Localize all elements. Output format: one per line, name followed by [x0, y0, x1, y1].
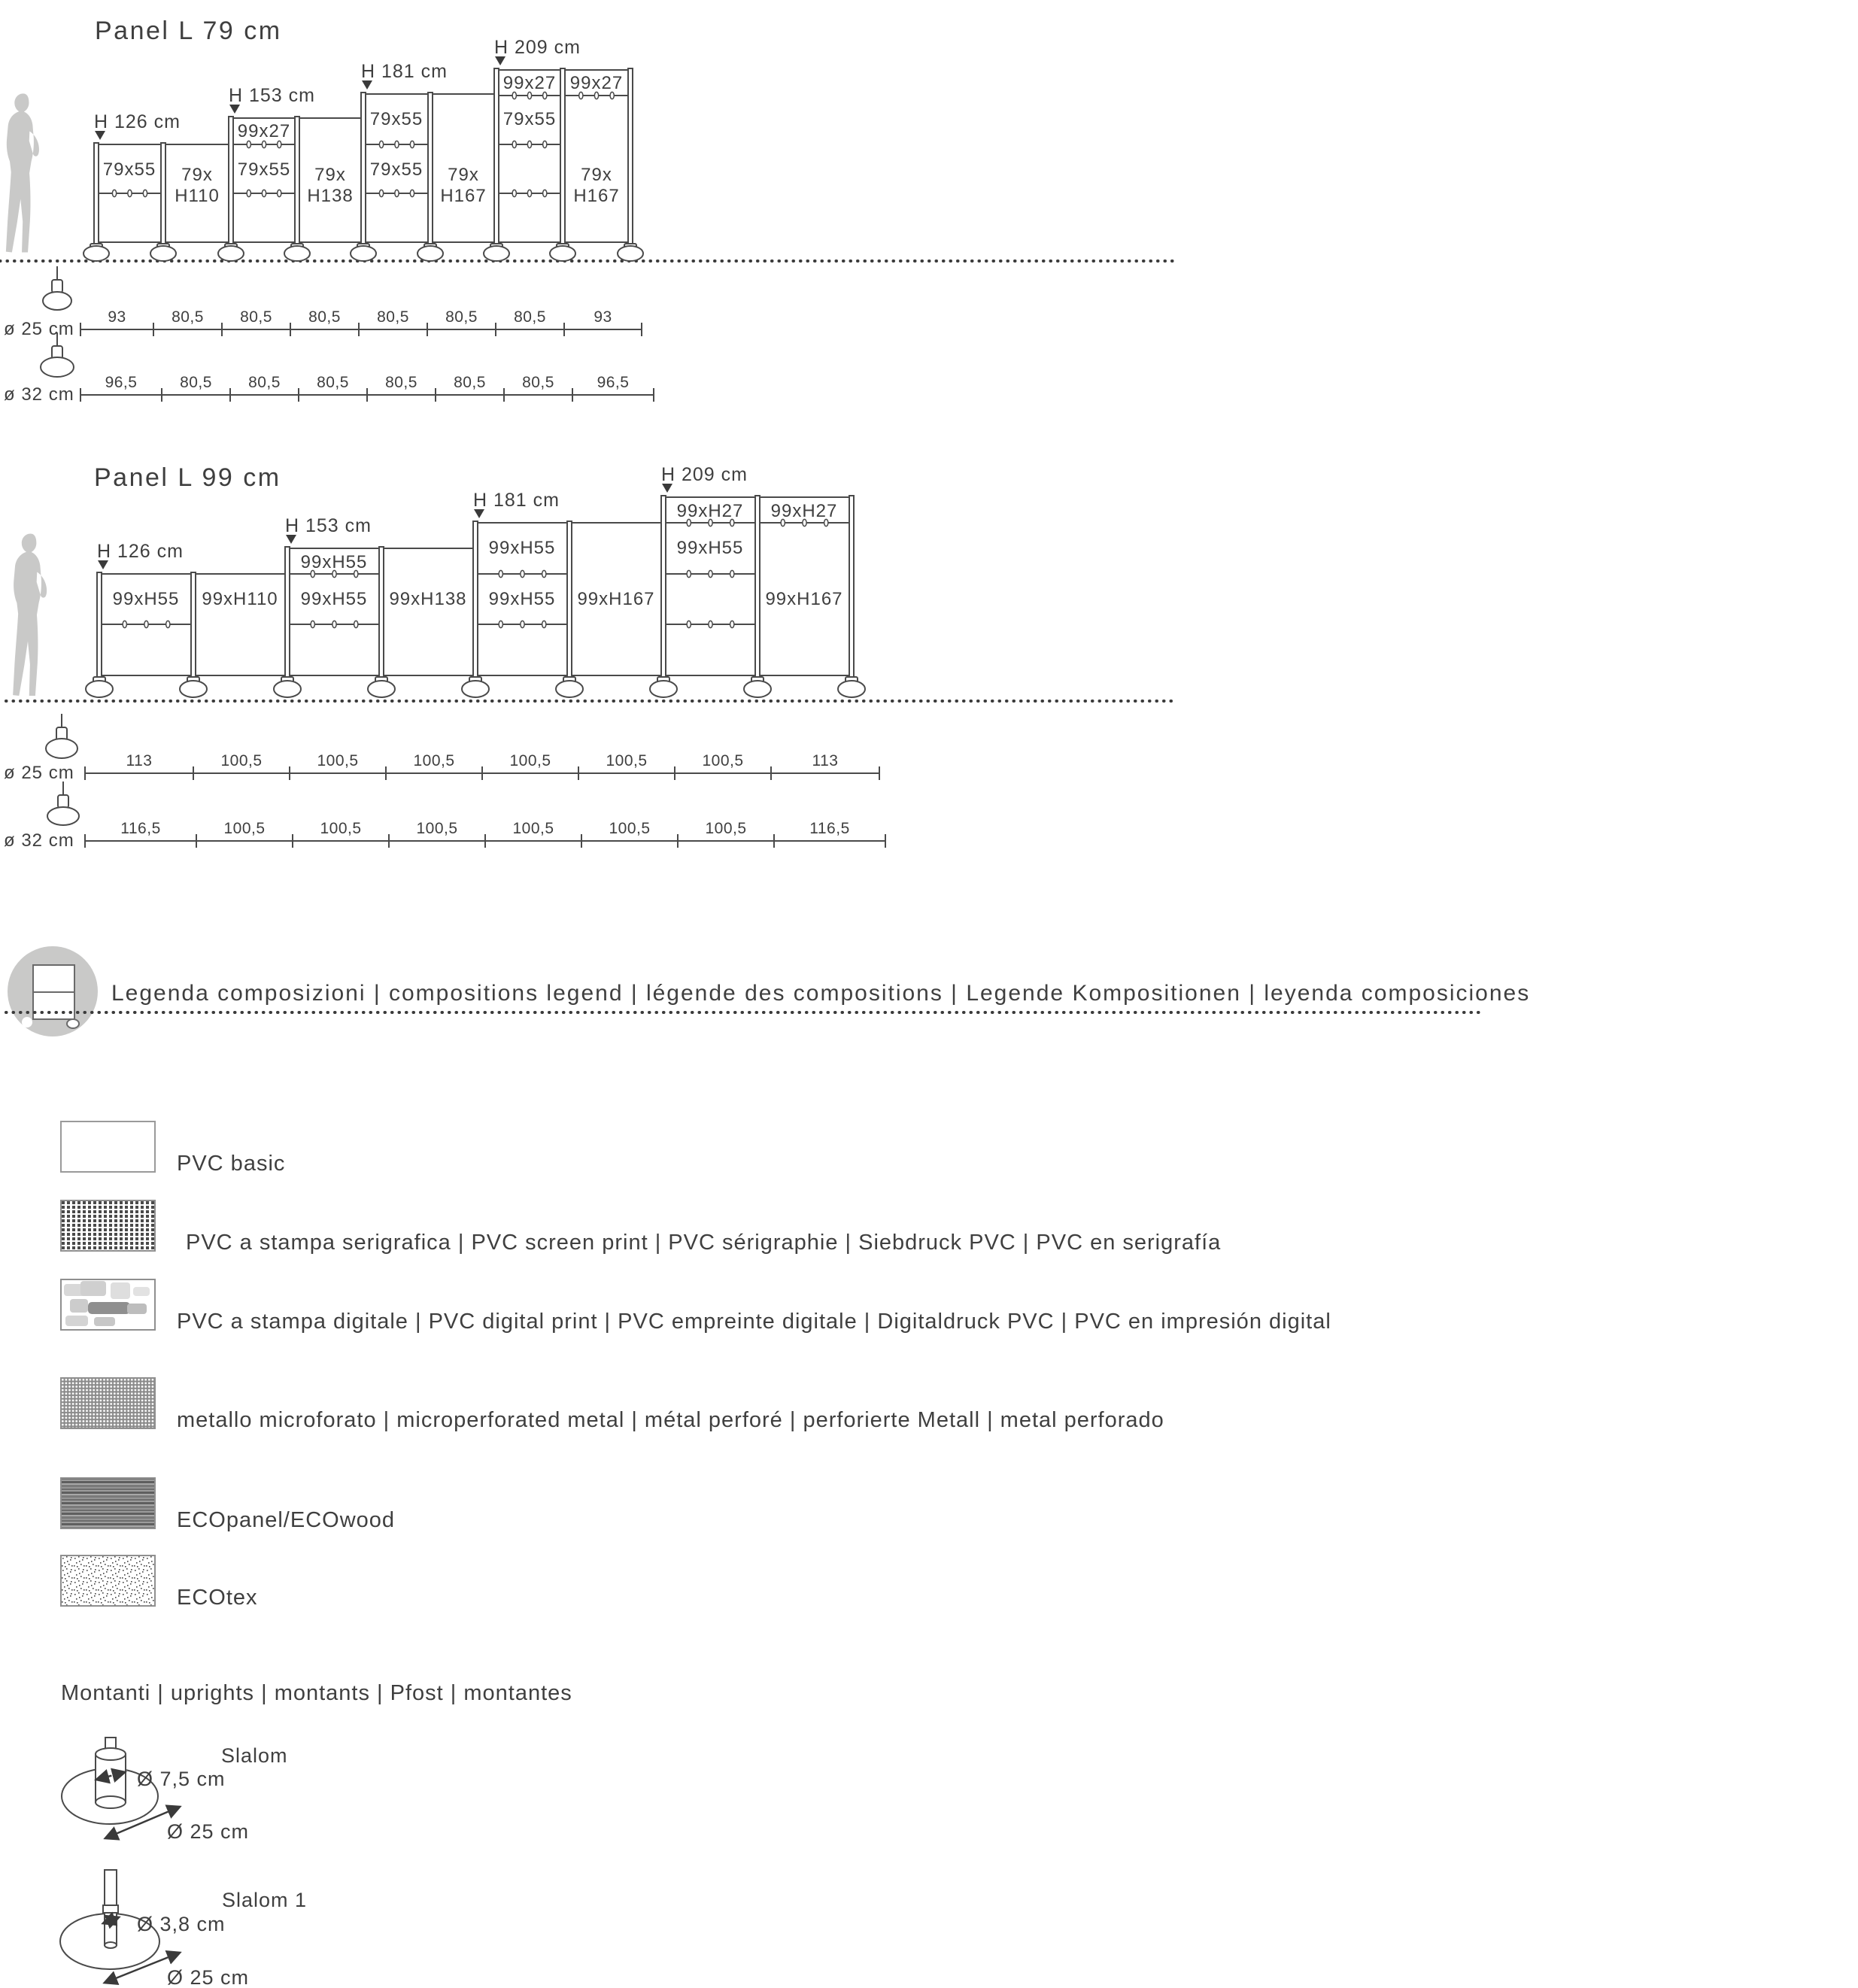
- post-base: [218, 246, 244, 261]
- post-base: [417, 246, 443, 261]
- panel-size-label: 79x: [448, 165, 479, 185]
- post-base: [650, 681, 677, 697]
- upright-slalom: Slalom Ø 7,5 cm Ø 25 cm: [62, 1738, 288, 1843]
- divider-connector-icon: [687, 570, 691, 577]
- panel-size-label: 99xH55: [677, 538, 744, 558]
- post-base: [618, 246, 643, 261]
- dimension-value: 80,5: [522, 374, 554, 391]
- legend-item: metallo microforato | microperforated me…: [61, 1378, 1164, 1432]
- divider-connector-icon: [410, 190, 414, 196]
- divider-connector-icon: [112, 190, 116, 196]
- dimension-value: 80,5: [454, 374, 486, 391]
- panel-size-label: 79x55: [370, 159, 423, 180]
- dimension-value: 100,5: [416, 820, 457, 837]
- panel-size-label: 99xH27: [677, 501, 744, 521]
- legend-item: ECOpanel/ECOwood: [61, 1478, 395, 1532]
- dimension-value: 93: [594, 308, 612, 326]
- swatch-ecopanel: [61, 1478, 155, 1528]
- divider-connector-icon: [527, 141, 531, 147]
- divider-connector-icon: [128, 190, 132, 196]
- dimension-value: 80,5: [248, 374, 281, 391]
- panel-size-label: 99xH55: [489, 589, 556, 609]
- divider-connector-icon: [499, 621, 502, 627]
- panel-bay: [381, 548, 475, 675]
- divider-connector-icon: [395, 190, 399, 196]
- dimension-value: 100,5: [705, 820, 746, 837]
- legend-item-label: PVC a stampa serigrafica | PVC screen pr…: [186, 1231, 1221, 1255]
- height-arrow-icon: [662, 484, 672, 493]
- divider-connector-icon: [687, 621, 691, 627]
- dimension-value: 96,5: [597, 374, 630, 391]
- height-arrow-icon: [495, 56, 505, 65]
- dimension-value: 113: [126, 752, 153, 769]
- dimension-value: 80,5: [240, 308, 272, 326]
- divider-connector-icon: [354, 621, 358, 627]
- upright-post: [97, 572, 102, 684]
- divider-connector-icon: [730, 621, 734, 627]
- height-label: H 181 cm: [473, 490, 560, 511]
- catalog-drawing: Panel L 79 cmH 126 cmH 153 cmH 181 cmH 2…: [0, 0, 1858, 1988]
- height-arrow-icon: [474, 509, 484, 518]
- dimension-value: 100,5: [512, 820, 554, 837]
- panel-size-label: 79x: [314, 165, 346, 185]
- dimension-value: 116,5: [120, 820, 161, 837]
- swatch-microperforated: [61, 1378, 155, 1428]
- divider-connector-icon: [395, 141, 399, 147]
- uprights-header: Montanti | uprights | montants | Pfost |…: [61, 1681, 572, 1705]
- panel-size-label: 79x55: [103, 159, 156, 180]
- panel-size-label: 79x: [581, 165, 612, 185]
- legend-item: PVC a stampa serigrafica | PVC screen pr…: [61, 1200, 1221, 1255]
- dimension-value: 100,5: [702, 752, 743, 769]
- dimension-value: 96,5: [105, 374, 138, 391]
- upright-name: Slalom: [221, 1744, 288, 1767]
- divider-connector-icon: [278, 141, 281, 147]
- height-label: H 209 cm: [661, 464, 748, 485]
- legend-item-label: PVC a stampa digitale | PVC digital prin…: [177, 1310, 1331, 1334]
- divider-connector-icon: [410, 141, 414, 147]
- upright-base-icon: [47, 807, 79, 825]
- upright-post: [560, 68, 565, 251]
- panel-size-label: 99xH55: [301, 589, 368, 609]
- post-base: [838, 681, 865, 697]
- upright-base-icon: [43, 292, 71, 310]
- base-diameter-label: Ø 25 cm: [167, 1820, 249, 1843]
- panel-size-label: 79x55: [370, 109, 423, 129]
- catalog-page: Panel L 79 cmH 126 cmH 153 cmH 181 cmH 2…: [0, 0, 1858, 1988]
- post-base: [86, 681, 113, 697]
- upright-post: [628, 68, 633, 251]
- base-diameter-label: ø 25 cm: [4, 763, 74, 783]
- dimension-value: 80,5: [308, 308, 341, 326]
- legend-item-label: ECOpanel/ECOwood: [177, 1508, 395, 1532]
- height-arrow-icon: [229, 105, 240, 114]
- dimension-value: 100,5: [413, 752, 454, 769]
- divider-connector-icon: [512, 190, 516, 196]
- dimension-value: 80,5: [445, 308, 478, 326]
- panel-size-label: H167: [573, 186, 619, 206]
- post-base: [351, 246, 376, 261]
- legend-section: Legenda composizioni | compositions lege…: [6, 946, 1530, 1610]
- dimension-value: 100,5: [606, 752, 647, 769]
- divider-connector-icon: [379, 190, 383, 196]
- divider-connector-icon: [543, 141, 547, 147]
- upright-post: [295, 117, 299, 251]
- upright-post: [494, 68, 499, 251]
- divider-connector-icon: [123, 621, 126, 627]
- height-label: H 153 cm: [229, 85, 315, 106]
- upright-post: [473, 521, 478, 684]
- panel-size-label: H167: [440, 186, 486, 206]
- divider-connector-icon: [166, 621, 170, 627]
- panel-size-label: 99xH167: [765, 589, 842, 609]
- panel-size-label: 99x27: [503, 73, 556, 93]
- divider-connector-icon: [543, 190, 547, 196]
- legend-badge-icon: [8, 946, 98, 1036]
- panel-size-label: H138: [307, 186, 353, 206]
- upright-post: [755, 496, 760, 684]
- height-label: H 126 cm: [97, 541, 184, 562]
- divider-connector-icon: [521, 570, 524, 577]
- dimension-value: 80,5: [377, 308, 409, 326]
- post-base: [274, 681, 301, 697]
- height-label: H 126 cm: [94, 111, 181, 132]
- upright-post: [285, 547, 290, 684]
- divider-connector-icon: [311, 621, 314, 627]
- dimension-value: 93: [108, 308, 126, 326]
- height-label: H 209 cm: [494, 37, 581, 58]
- post-base: [484, 246, 509, 261]
- panel-size-label: 99x27: [570, 73, 623, 93]
- dimension-value: 80,5: [180, 374, 212, 391]
- dimension-value: 100,5: [609, 820, 650, 837]
- swatch-screen-print: [61, 1200, 155, 1251]
- height-arrow-icon: [286, 535, 296, 544]
- height-label: H 153 cm: [285, 515, 372, 536]
- divider-connector-icon: [262, 141, 266, 147]
- panel-size-label: 79x: [181, 165, 213, 185]
- divider-connector-icon: [542, 570, 546, 577]
- panel-size-label: 99xH167: [577, 589, 654, 609]
- upright-post: [849, 496, 854, 684]
- post-base: [83, 246, 109, 261]
- collar: [103, 1905, 118, 1913]
- dimension-value: 100,5: [223, 820, 265, 837]
- panel-size-label: 99xH138: [389, 589, 466, 609]
- height-label: H 181 cm: [361, 61, 448, 82]
- base-diameter-label: Ø 25 cm: [167, 1966, 249, 1988]
- swatch-ecotex: [61, 1555, 155, 1606]
- person-silhouette: [13, 533, 47, 695]
- divider-connector-icon: [499, 570, 502, 577]
- uprights-section: Montanti | uprights | montants | Pfost |…: [60, 1681, 572, 1988]
- panel-size-label: 99x27: [238, 121, 290, 141]
- panel-size-label: 99xH55: [489, 538, 556, 558]
- diagram-title: Panel L 79 cm: [95, 17, 282, 45]
- post-base: [744, 681, 771, 697]
- dimension-value: 100,5: [317, 752, 358, 769]
- base-diameter-label: ø 32 cm: [4, 384, 74, 405]
- person-silhouette: [6, 93, 39, 252]
- divider-connector-icon: [521, 621, 524, 627]
- post-base: [462, 681, 489, 697]
- base-diameter-label: ø 25 cm: [4, 319, 74, 339]
- panel-size-label: H110: [175, 186, 220, 206]
- legend-item: PVC a stampa digitale | PVC digital prin…: [61, 1279, 1331, 1334]
- upright-base-icon: [52, 280, 62, 293]
- upright-post: [361, 93, 366, 251]
- divider-connector-icon: [379, 141, 383, 147]
- upright-base-icon: [46, 739, 77, 758]
- divider-connector-icon: [527, 190, 531, 196]
- dimension-value: 80,5: [385, 374, 417, 391]
- dimension-value: 80,5: [317, 374, 349, 391]
- dimension-value: 80,5: [172, 308, 204, 326]
- height-arrow-icon: [95, 131, 105, 140]
- swatch-pvc-basic: [61, 1121, 155, 1172]
- upright-name: Slalom 1: [222, 1889, 307, 1911]
- divider-connector-icon: [709, 570, 712, 577]
- legend-item-label: ECOtex: [177, 1586, 258, 1610]
- divider-connector-icon: [262, 190, 266, 196]
- post-base: [550, 246, 575, 261]
- upright-post: [379, 547, 384, 684]
- divider-connector-icon: [247, 141, 250, 147]
- upright-post: [661, 496, 666, 684]
- post-base: [556, 681, 583, 697]
- legend-item: PVC basic: [61, 1121, 285, 1176]
- post-base: [180, 681, 207, 697]
- upright-post: [161, 143, 165, 251]
- divider-connector-icon: [730, 570, 734, 577]
- divider-connector-icon: [542, 621, 546, 627]
- divider-connector-icon: [247, 190, 250, 196]
- height-arrow-icon: [362, 80, 372, 90]
- dimension-value: 100,5: [220, 752, 262, 769]
- upright-post: [567, 521, 572, 684]
- panel-size-label: 79x55: [503, 109, 556, 129]
- post-base: [284, 246, 310, 261]
- upright-post: [191, 572, 196, 684]
- upright-base-icon: [58, 795, 68, 808]
- panel-size-label: 99xH110: [202, 589, 278, 609]
- upright-base-icon: [41, 357, 74, 377]
- post-base: [368, 681, 395, 697]
- panel-size-label: 99xH55: [113, 589, 180, 609]
- divider-connector-icon: [144, 621, 148, 627]
- upright-post: [428, 93, 433, 251]
- divider-connector-icon: [332, 621, 336, 627]
- dimension-value: 100,5: [509, 752, 551, 769]
- divider-connector-icon: [143, 190, 147, 196]
- divider-connector-icon: [278, 190, 281, 196]
- diagram-panel-l99: Panel L 99 cmH 126 cmH 153 cmH 181 cmH 2…: [4, 463, 1177, 851]
- dimension-value: 116,5: [809, 820, 850, 837]
- height-arrow-icon: [98, 560, 108, 569]
- pole-diameter-label: Ø 7,5 cm: [137, 1768, 226, 1790]
- panel-size-label: 99xH55: [301, 552, 368, 572]
- upright-slalom-1: Slalom 1 Ø 3,8 cm Ø 25 cm: [60, 1870, 307, 1988]
- upright-post: [94, 143, 99, 251]
- legend-header: Legenda composizioni | compositions lege…: [111, 981, 1530, 1006]
- divider-connector-icon: [709, 621, 712, 627]
- legend-item-label: metallo microforato | microperforated me…: [177, 1408, 1164, 1432]
- upright-post: [229, 117, 233, 251]
- legend-item: ECOtex: [61, 1555, 258, 1610]
- legend-item-label: PVC basic: [177, 1152, 285, 1176]
- pole-diameter-label: Ø 3,8 cm: [137, 1913, 226, 1935]
- diagram-panel-l79: Panel L 79 cmH 126 cmH 153 cmH 181 cmH 2…: [0, 17, 1175, 405]
- dimension-value: 80,5: [514, 308, 546, 326]
- diagram-title: Panel L 99 cm: [94, 463, 281, 492]
- dimension-value: 100,5: [320, 820, 361, 837]
- divider-connector-icon: [512, 141, 516, 147]
- dimension-value: 113: [812, 752, 839, 769]
- base-diameter-label: ø 32 cm: [4, 830, 74, 851]
- swatch-digital-print: [61, 1279, 155, 1330]
- panel-size-label: 99xH27: [771, 501, 838, 521]
- post-base: [150, 246, 176, 261]
- panel-size-label: 79x55: [238, 159, 290, 180]
